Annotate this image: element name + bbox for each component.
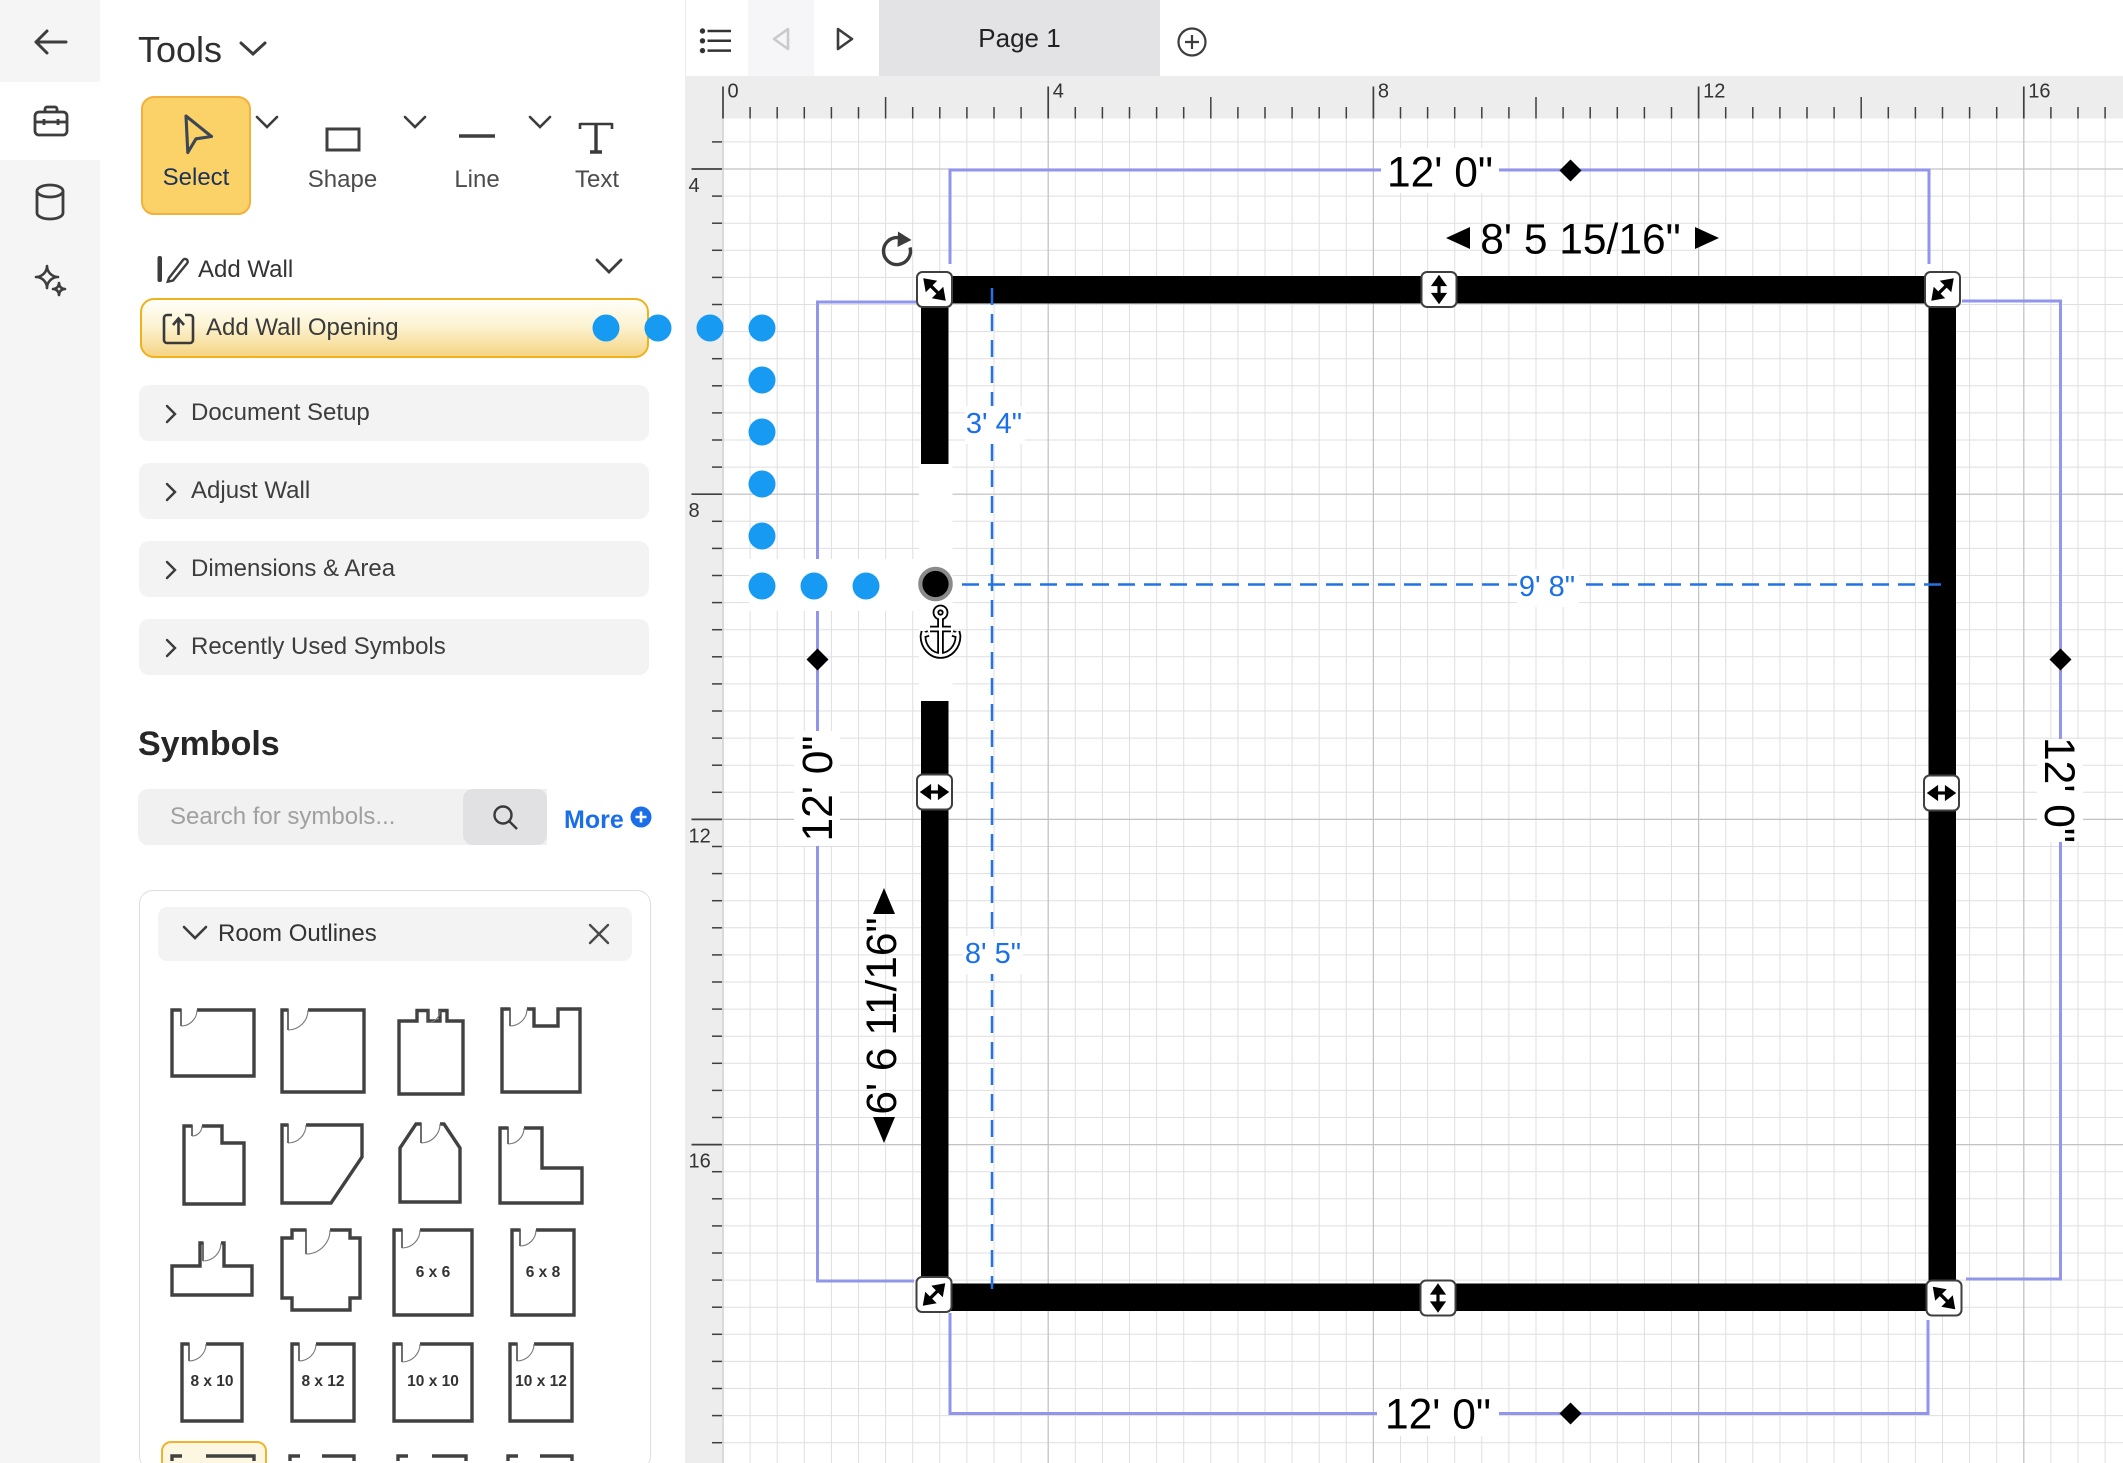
svg-text:4: 4 [689,175,700,197]
svg-text:12' 0": 12' 0" [2035,737,2082,843]
svg-text:12' 0": 12' 0" [1385,1392,1491,1439]
svg-text:12' 0": 12' 0" [1387,150,1493,197]
svg-text:9' 8": 9' 8" [1519,571,1575,603]
svg-text:3' 4": 3' 4" [966,408,1022,440]
svg-text:16: 16 [689,1151,711,1173]
svg-text:6' 6 11/16": 6' 6 11/16" [859,917,906,1114]
svg-text:12' 0": 12' 0" [795,736,842,842]
svg-text:0: 0 [728,80,739,102]
svg-text:8' 5": 8' 5" [965,938,1021,970]
svg-text:8: 8 [689,500,700,522]
svg-text:8' 5 15/16": 8' 5 15/16" [1480,217,1680,264]
svg-text:8: 8 [1378,80,1389,102]
svg-text:4: 4 [1053,80,1064,102]
svg-text:12: 12 [1703,80,1725,102]
svg-text:12: 12 [689,825,711,847]
svg-text:16: 16 [2028,80,2050,102]
